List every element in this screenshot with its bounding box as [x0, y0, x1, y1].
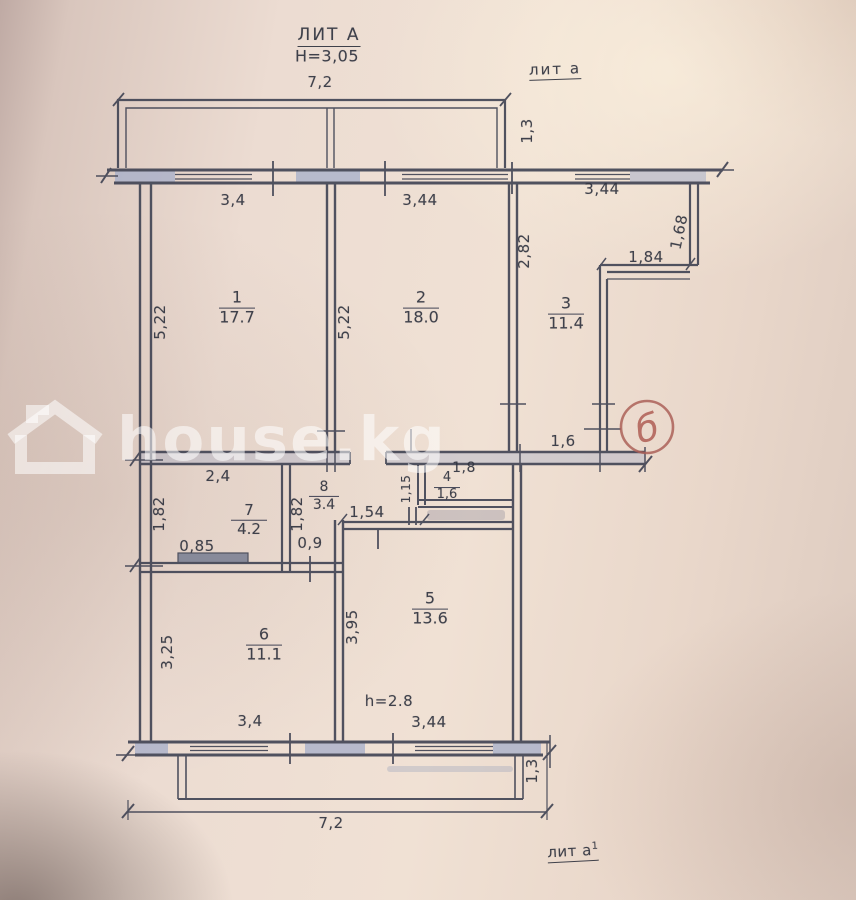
room-4-label: 41,6 — [434, 471, 460, 503]
dim-passage-width: 1,54 — [349, 503, 384, 521]
dim-window5-width: 3,44 — [411, 713, 446, 731]
dim-room1-depth: 5,22 — [151, 304, 169, 339]
dim-hall-opening: 1,6 — [550, 432, 575, 450]
title-building-height: H=3,05 — [295, 47, 359, 66]
dim-room2-depth: 5,22 — [335, 304, 353, 339]
dim-balcony-top-depth: 1,3 — [518, 118, 536, 143]
dim-room5-depth: 3,95 — [343, 609, 361, 644]
dim-window3-width: 3,44 — [584, 180, 619, 198]
title-lit-a: ЛИТ А — [298, 25, 361, 45]
dim-door-width: 0,9 — [297, 534, 322, 552]
dim-room8-depth: 1,82 — [288, 496, 306, 531]
floorplan-drawing: б — [0, 0, 856, 900]
room-5-label: 513.6 — [412, 590, 448, 629]
room-6-label: 611.1 — [246, 626, 282, 665]
dim-balcony-bottom-depth: 1,3 — [523, 758, 541, 783]
dim-balcony-bottom-width: 7,2 — [318, 814, 343, 832]
dim-window4-width: 3,4 — [237, 712, 262, 730]
mark-b-letter: б — [631, 405, 664, 452]
dim-wc-depth: 1,15 — [399, 475, 413, 504]
floorplan-photo: б house.kg ЛИТ А H=3,05 лит а h=2.8 лит … — [0, 0, 856, 900]
dim-hall-width: 2,4 — [205, 467, 230, 485]
dim-room3-left-depth: 2,82 — [515, 233, 533, 268]
dim-room7-depth: 1,82 — [150, 496, 168, 531]
room-2-label: 218.0 — [403, 289, 439, 328]
room-3-label: 311.4 — [548, 295, 584, 334]
dim-room3-niche-width: 1,84 — [628, 248, 663, 266]
title-lit-a-small: лит а — [529, 59, 582, 79]
room-8-label: 83.4 — [309, 479, 339, 513]
dim-window1-width: 3,4 — [220, 191, 245, 209]
dim-window2-width: 3,44 — [402, 191, 437, 209]
dim-closet-width: 0,85 — [179, 537, 214, 555]
room-7-label: 74.2 — [231, 502, 267, 539]
room-1-label: 117.7 — [219, 289, 255, 328]
dim-room6-depth: 3,25 — [158, 634, 176, 669]
note-ceiling-height: h=2.8 — [365, 692, 413, 710]
title-lit-a1: лит а1 — [547, 841, 599, 862]
dim-balcony-top-width: 7,2 — [307, 73, 332, 91]
